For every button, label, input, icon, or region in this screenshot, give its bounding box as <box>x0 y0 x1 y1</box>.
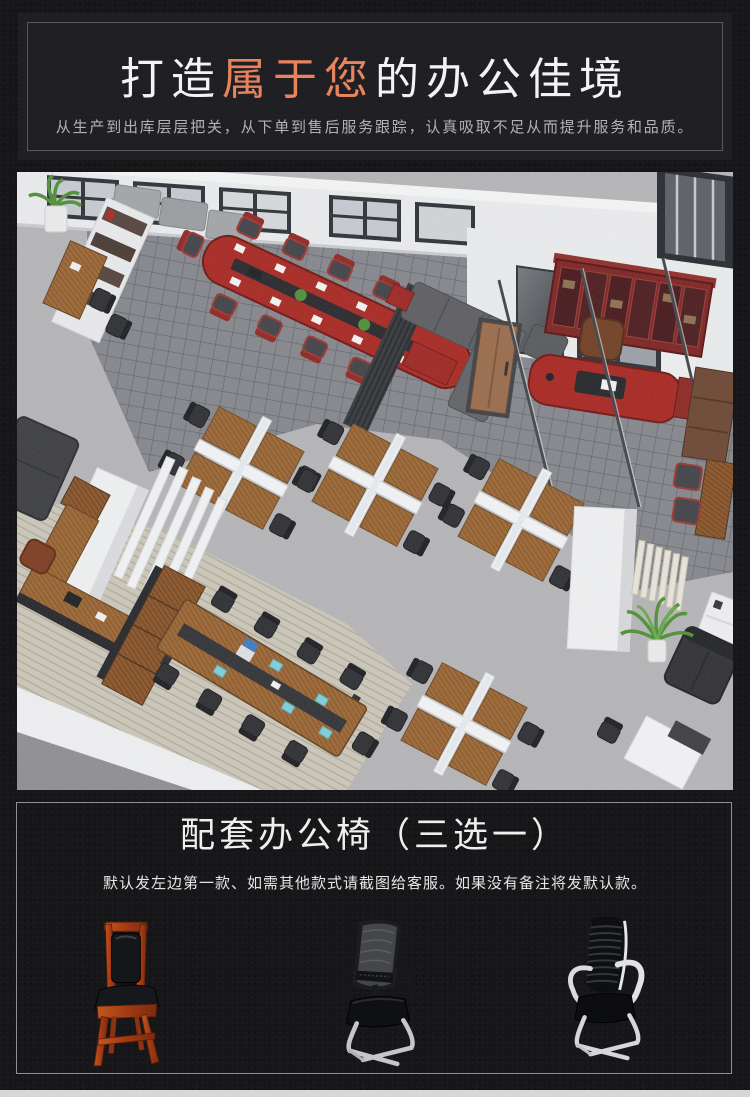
chair-option-1 <box>72 918 184 1072</box>
photo-grain <box>17 172 733 790</box>
hero-subtitle: 从生产到出库层层把关，从下单到售后服务跟踪，认真吸取不足从而提升服务和品质。 <box>18 116 732 137</box>
hero-title-accent: 属于您 <box>222 55 375 104</box>
next-section-strip <box>0 1090 750 1097</box>
black-mesh-cantilever-chair-icon <box>303 918 451 1070</box>
chair-option-3 <box>532 916 680 1062</box>
chair-option-2 <box>303 918 451 1070</box>
hero-title-post: 的办公佳境 <box>375 55 630 104</box>
hero-banner: 打造属于您的办公佳境 从生产到出库层层把关，从下单到售后服务跟踪，认真吸取不足从… <box>18 13 732 160</box>
hero-title-pre: 打造 <box>120 55 222 104</box>
black-white-ribbed-cantilever-chair-icon <box>532 916 680 1062</box>
red-wood-leather-visitor-chair-icon <box>72 918 184 1072</box>
office-scene <box>17 172 733 790</box>
hero-title: 打造属于您的办公佳境 <box>18 43 732 107</box>
office-showroom-image <box>17 172 733 790</box>
product-detail-page: 打造属于您的办公佳境 从生产到出库层层把关，从下单到售后服务跟踪，认真吸取不足从… <box>0 0 750 1097</box>
chairs-section-note: 默认发左边第一款、如需其他款式请截图给客服。如果没有备注将发默认款。 <box>0 872 750 893</box>
chairs-section-title: 配套办公椅（三选一） <box>0 807 750 858</box>
